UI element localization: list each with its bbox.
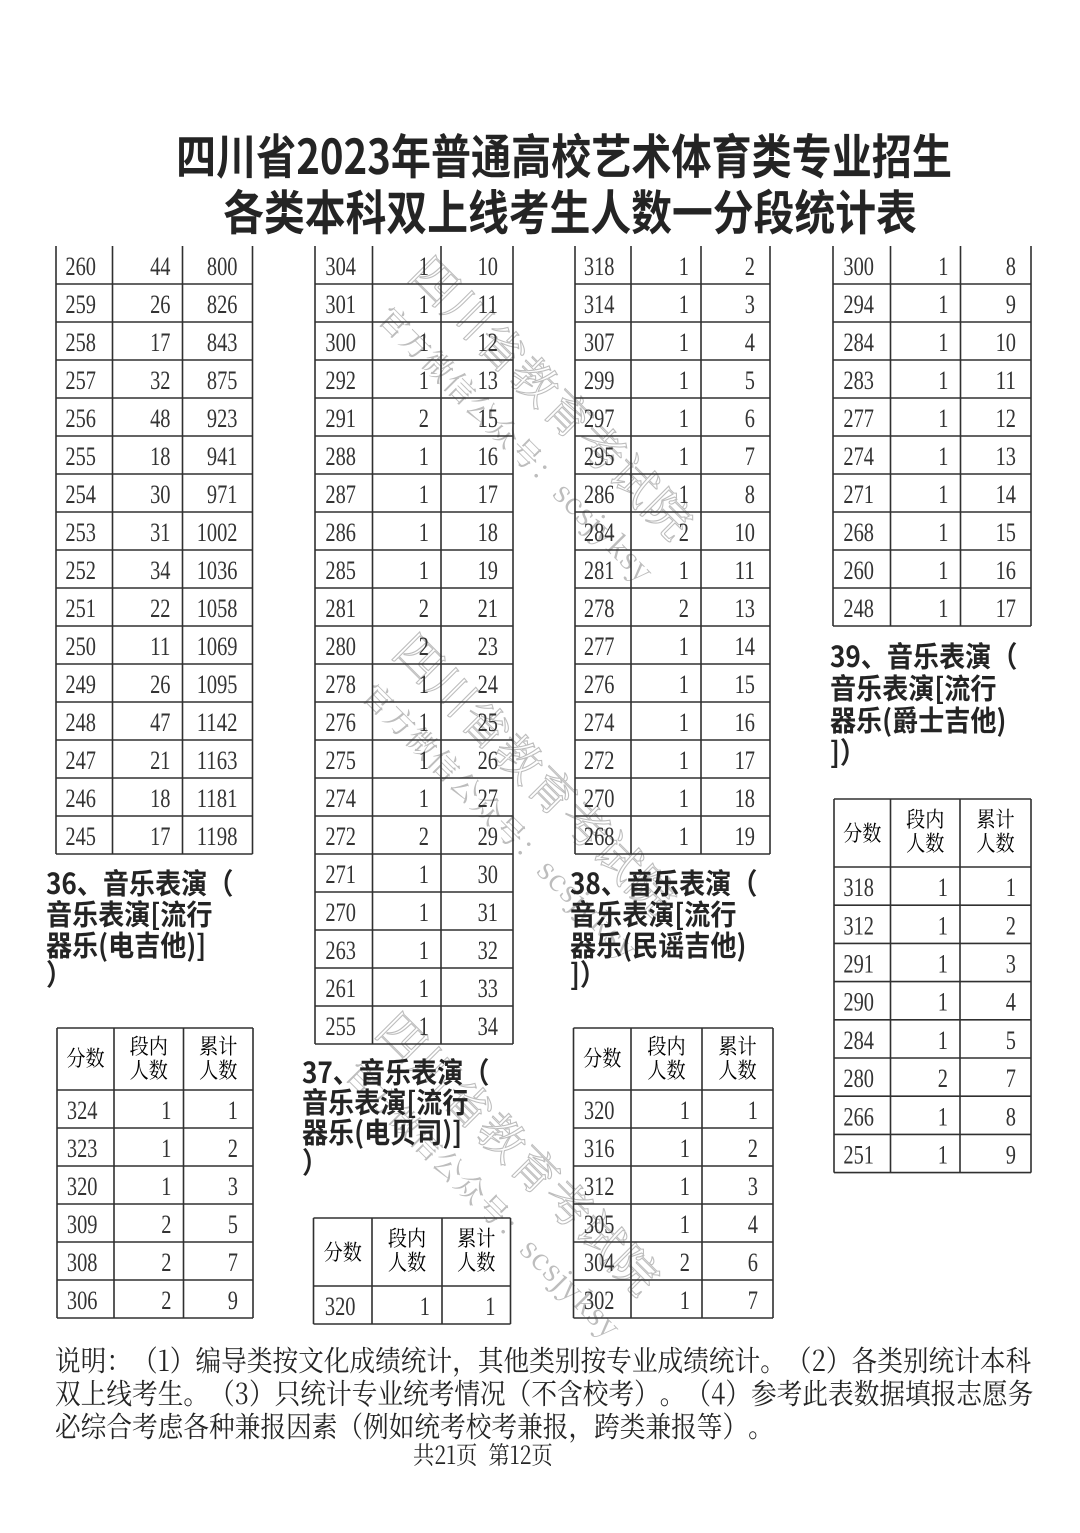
svg-text:288: 288	[325, 442, 356, 471]
svg-text:245: 245	[65, 822, 96, 851]
svg-text:11: 11	[478, 290, 498, 319]
svg-text:26: 26	[478, 746, 498, 775]
svg-text:277: 277	[584, 632, 615, 661]
svg-text:18: 18	[735, 784, 755, 813]
svg-text:4: 4	[745, 328, 755, 357]
svg-text:1: 1	[938, 1141, 948, 1170]
svg-text:23: 23	[478, 632, 498, 661]
svg-text:1: 1	[419, 480, 429, 509]
svg-text:2: 2	[419, 822, 429, 851]
svg-text:2: 2	[419, 632, 429, 661]
svg-text:261: 261	[325, 974, 356, 1003]
svg-text:1: 1	[938, 252, 948, 281]
svg-text:287: 287	[325, 480, 356, 509]
svg-text:292: 292	[325, 366, 356, 395]
svg-text:2: 2	[679, 594, 689, 623]
svg-text:318: 318	[584, 252, 615, 281]
svg-text:18: 18	[150, 442, 170, 471]
svg-text:6: 6	[748, 1248, 758, 1277]
svg-text:297: 297	[584, 404, 615, 433]
svg-text:247: 247	[65, 746, 96, 775]
svg-text:1: 1	[679, 404, 689, 433]
svg-text:16: 16	[478, 442, 498, 471]
svg-text:1: 1	[419, 1012, 429, 1041]
svg-text:17: 17	[150, 822, 170, 851]
svg-text:4: 4	[1006, 988, 1016, 1017]
svg-text:3: 3	[748, 1172, 758, 1201]
svg-text:1: 1	[938, 290, 948, 319]
svg-text:291: 291	[325, 404, 356, 433]
svg-text:29: 29	[478, 822, 498, 851]
svg-text:1: 1	[938, 988, 948, 1017]
svg-text:260: 260	[65, 252, 96, 281]
svg-text:271: 271	[325, 860, 356, 889]
svg-text:255: 255	[325, 1012, 356, 1041]
svg-text:11: 11	[996, 366, 1016, 395]
svg-text:283: 283	[843, 366, 874, 395]
svg-text:18: 18	[150, 784, 170, 813]
svg-text:276: 276	[584, 670, 615, 699]
svg-text:270: 270	[584, 784, 615, 813]
svg-text:286: 286	[584, 480, 615, 509]
svg-text:2: 2	[748, 1134, 758, 1163]
svg-text:16: 16	[996, 556, 1016, 585]
svg-text:285: 285	[325, 556, 356, 585]
svg-text:971: 971	[207, 480, 238, 509]
svg-text:312: 312	[843, 911, 874, 940]
svg-text:1: 1	[938, 404, 948, 433]
svg-text:10: 10	[735, 518, 755, 547]
svg-text:26: 26	[150, 290, 170, 319]
svg-text:1: 1	[679, 746, 689, 775]
svg-text:12: 12	[478, 328, 498, 357]
svg-text:1: 1	[938, 556, 948, 585]
svg-text:843: 843	[207, 328, 238, 357]
svg-text:300: 300	[843, 252, 874, 281]
svg-text:32: 32	[478, 936, 498, 965]
svg-text:1: 1	[161, 1134, 171, 1163]
svg-text:1: 1	[679, 632, 689, 661]
svg-text:8: 8	[745, 480, 755, 509]
svg-text:1: 1	[680, 1172, 690, 1201]
svg-text:5: 5	[228, 1210, 238, 1239]
svg-text:1181: 1181	[197, 784, 238, 813]
svg-text:4: 4	[748, 1210, 758, 1239]
svg-text:1: 1	[938, 594, 948, 623]
svg-text:7: 7	[228, 1248, 238, 1277]
svg-text:251: 251	[65, 594, 96, 623]
svg-text:284: 284	[843, 328, 874, 357]
svg-text:257: 257	[65, 366, 96, 395]
svg-text:16: 16	[735, 708, 755, 737]
svg-text:11: 11	[735, 556, 755, 585]
svg-text:1: 1	[679, 290, 689, 319]
svg-text:10: 10	[996, 328, 1016, 357]
svg-text:34: 34	[478, 1012, 498, 1041]
svg-text:306: 306	[67, 1286, 98, 1315]
svg-text:1: 1	[419, 898, 429, 927]
svg-text:1: 1	[161, 1172, 171, 1201]
svg-text:5: 5	[1006, 1026, 1016, 1055]
svg-text:7: 7	[745, 442, 755, 471]
svg-text:304: 304	[325, 252, 356, 281]
svg-text:1: 1	[419, 670, 429, 699]
svg-text:248: 248	[843, 594, 874, 623]
svg-text:1: 1	[938, 911, 948, 940]
svg-text:254: 254	[65, 480, 96, 509]
svg-text:1: 1	[938, 442, 948, 471]
svg-text:33: 33	[478, 974, 498, 1003]
svg-text:316: 316	[584, 1134, 615, 1163]
svg-text:258: 258	[65, 328, 96, 357]
svg-text:280: 280	[325, 632, 356, 661]
svg-text:30: 30	[150, 480, 170, 509]
svg-text:1069: 1069	[197, 632, 238, 661]
svg-text:276: 276	[325, 708, 356, 737]
svg-text:3: 3	[745, 290, 755, 319]
svg-text:18: 18	[478, 518, 498, 547]
svg-text:1: 1	[680, 1286, 690, 1315]
svg-text:1: 1	[680, 1096, 690, 1125]
svg-text:299: 299	[584, 366, 615, 395]
svg-text:278: 278	[325, 670, 356, 699]
svg-text:15: 15	[996, 518, 1016, 547]
svg-text:5: 5	[745, 366, 755, 395]
svg-text:320: 320	[67, 1172, 98, 1201]
svg-text:312: 312	[584, 1172, 615, 1201]
svg-text:253: 253	[65, 518, 96, 547]
svg-text:1: 1	[679, 822, 689, 851]
svg-text:6: 6	[745, 404, 755, 433]
svg-text:1: 1	[679, 556, 689, 585]
svg-text:1: 1	[679, 480, 689, 509]
svg-text:7: 7	[1006, 1064, 1016, 1093]
svg-text:19: 19	[478, 556, 498, 585]
svg-text:1: 1	[420, 1292, 430, 1321]
svg-text:48: 48	[150, 404, 170, 433]
svg-text:1: 1	[938, 1102, 948, 1131]
svg-text:278: 278	[584, 594, 615, 623]
svg-text:271: 271	[843, 480, 874, 509]
svg-text:13: 13	[996, 442, 1016, 471]
svg-text:1095: 1095	[197, 670, 238, 699]
svg-text:286: 286	[325, 518, 356, 547]
svg-text:2: 2	[419, 404, 429, 433]
svg-text:284: 284	[584, 518, 615, 547]
svg-text:8: 8	[1006, 1102, 1016, 1131]
svg-text:255: 255	[65, 442, 96, 471]
svg-text:1058: 1058	[197, 594, 238, 623]
svg-text:21: 21	[150, 746, 170, 775]
svg-text:1: 1	[485, 1292, 495, 1321]
svg-text:1: 1	[419, 936, 429, 965]
svg-text:1: 1	[419, 290, 429, 319]
svg-text:12: 12	[996, 404, 1016, 433]
svg-text:7: 7	[748, 1286, 758, 1315]
svg-text:1: 1	[1006, 873, 1016, 902]
svg-text:274: 274	[843, 442, 874, 471]
svg-text:17: 17	[150, 328, 170, 357]
svg-text:26: 26	[150, 670, 170, 699]
svg-text:324: 324	[67, 1096, 98, 1125]
svg-text:2: 2	[745, 252, 755, 281]
svg-text:2: 2	[938, 1064, 948, 1093]
svg-text:1: 1	[680, 1134, 690, 1163]
svg-text:323: 323	[67, 1134, 98, 1163]
svg-text:32: 32	[150, 366, 170, 395]
svg-text:314: 314	[584, 290, 615, 319]
svg-text:1: 1	[419, 252, 429, 281]
svg-text:31: 31	[478, 898, 498, 927]
svg-text:1: 1	[679, 366, 689, 395]
svg-text:22: 22	[150, 594, 170, 623]
svg-text:9: 9	[228, 1286, 238, 1315]
svg-text:1: 1	[679, 328, 689, 357]
svg-text:268: 268	[843, 518, 874, 547]
svg-text:2: 2	[680, 1248, 690, 1277]
svg-text:1: 1	[419, 784, 429, 813]
svg-text:246: 246	[65, 784, 96, 813]
svg-text:27: 27	[478, 784, 498, 813]
svg-text:30: 30	[478, 860, 498, 889]
svg-text:281: 281	[325, 594, 356, 623]
svg-text:294: 294	[843, 290, 874, 319]
svg-text:13: 13	[735, 594, 755, 623]
svg-text:307: 307	[584, 328, 615, 357]
svg-text:47: 47	[150, 708, 170, 737]
svg-text:31: 31	[150, 518, 170, 547]
svg-text:256: 256	[65, 404, 96, 433]
svg-text:274: 274	[584, 708, 615, 737]
svg-text:259: 259	[65, 290, 96, 319]
svg-text:1: 1	[419, 518, 429, 547]
svg-text:1: 1	[679, 670, 689, 699]
svg-text:295: 295	[584, 442, 615, 471]
svg-text:270: 270	[325, 898, 356, 927]
svg-text:308: 308	[67, 1248, 98, 1277]
svg-text:277: 277	[843, 404, 874, 433]
svg-text:14: 14	[735, 632, 755, 661]
svg-text:34: 34	[150, 556, 170, 585]
svg-text:301: 301	[325, 290, 356, 319]
svg-text:1: 1	[938, 950, 948, 979]
svg-text:1: 1	[748, 1096, 758, 1125]
svg-text:1: 1	[419, 442, 429, 471]
svg-text:2: 2	[419, 594, 429, 623]
svg-text:260: 260	[843, 556, 874, 585]
svg-text:2: 2	[679, 518, 689, 547]
svg-text:800: 800	[207, 252, 238, 281]
svg-text:24: 24	[478, 670, 498, 699]
svg-text:1: 1	[938, 873, 948, 902]
svg-text:1: 1	[938, 366, 948, 395]
svg-text:304: 304	[584, 1248, 615, 1277]
svg-text:318: 318	[843, 873, 874, 902]
svg-text:19: 19	[735, 822, 755, 851]
svg-text:1: 1	[419, 328, 429, 357]
svg-text:320: 320	[584, 1096, 615, 1125]
svg-text:17: 17	[996, 594, 1016, 623]
svg-text:10: 10	[478, 252, 498, 281]
svg-text:272: 272	[584, 746, 615, 775]
svg-text:275: 275	[325, 746, 356, 775]
svg-text:263: 263	[325, 936, 356, 965]
svg-text:252: 252	[65, 556, 96, 585]
svg-text:305: 305	[584, 1210, 615, 1239]
svg-text:44: 44	[150, 252, 170, 281]
svg-text:1198: 1198	[197, 822, 238, 851]
svg-text:11: 11	[150, 632, 170, 661]
svg-text:1: 1	[679, 784, 689, 813]
svg-text:274: 274	[325, 784, 356, 813]
svg-text:2: 2	[161, 1210, 171, 1239]
svg-text:1: 1	[419, 860, 429, 889]
svg-text:9: 9	[1006, 1141, 1016, 1170]
svg-text:1: 1	[419, 708, 429, 737]
svg-text:1: 1	[679, 252, 689, 281]
svg-text:941: 941	[207, 442, 238, 471]
svg-text:1: 1	[938, 328, 948, 357]
svg-text:2: 2	[161, 1286, 171, 1315]
svg-text:1002: 1002	[197, 518, 238, 547]
svg-text:249: 249	[65, 670, 96, 699]
svg-text:15: 15	[735, 670, 755, 699]
svg-text:3: 3	[1006, 950, 1016, 979]
svg-text:280: 280	[843, 1064, 874, 1093]
svg-text:14: 14	[996, 480, 1016, 509]
svg-text:25: 25	[478, 708, 498, 737]
svg-text:2: 2	[1006, 911, 1016, 940]
svg-text:320: 320	[325, 1292, 356, 1321]
svg-text:291: 291	[843, 950, 874, 979]
svg-text:302: 302	[584, 1286, 615, 1315]
svg-text:1: 1	[419, 556, 429, 585]
svg-text:1: 1	[679, 708, 689, 737]
svg-text:268: 268	[584, 822, 615, 851]
svg-text:3: 3	[228, 1172, 238, 1201]
svg-text:1: 1	[228, 1096, 238, 1125]
svg-text:9: 9	[1006, 290, 1016, 319]
svg-text:1: 1	[680, 1210, 690, 1239]
svg-text:875: 875	[207, 366, 238, 395]
svg-text:266: 266	[843, 1102, 874, 1131]
svg-text:2: 2	[161, 1248, 171, 1277]
svg-text:250: 250	[65, 632, 96, 661]
svg-text:1: 1	[161, 1096, 171, 1125]
svg-text:251: 251	[843, 1141, 874, 1170]
svg-text:1142: 1142	[197, 708, 238, 737]
svg-text:17: 17	[478, 480, 498, 509]
svg-text:1: 1	[938, 518, 948, 547]
svg-text:1: 1	[419, 974, 429, 1003]
svg-text:1: 1	[419, 366, 429, 395]
svg-text:8: 8	[1006, 252, 1016, 281]
svg-text:2: 2	[228, 1134, 238, 1163]
svg-text:309: 309	[67, 1210, 98, 1239]
svg-text:1: 1	[938, 1026, 948, 1055]
svg-text:272: 272	[325, 822, 356, 851]
svg-text:21: 21	[478, 594, 498, 623]
svg-text:1036: 1036	[197, 556, 238, 585]
svg-text:284: 284	[843, 1026, 874, 1055]
svg-text:17: 17	[735, 746, 755, 775]
svg-text:248: 248	[65, 708, 96, 737]
svg-text:281: 281	[584, 556, 615, 585]
svg-text:826: 826	[207, 290, 238, 319]
svg-text:15: 15	[478, 404, 498, 433]
svg-text:1: 1	[938, 480, 948, 509]
svg-text:1: 1	[679, 442, 689, 471]
svg-text:1: 1	[419, 746, 429, 775]
svg-text:1163: 1163	[197, 746, 238, 775]
svg-text:300: 300	[325, 328, 356, 357]
svg-text:13: 13	[478, 366, 498, 395]
svg-text:290: 290	[843, 988, 874, 1017]
svg-text:923: 923	[207, 404, 238, 433]
